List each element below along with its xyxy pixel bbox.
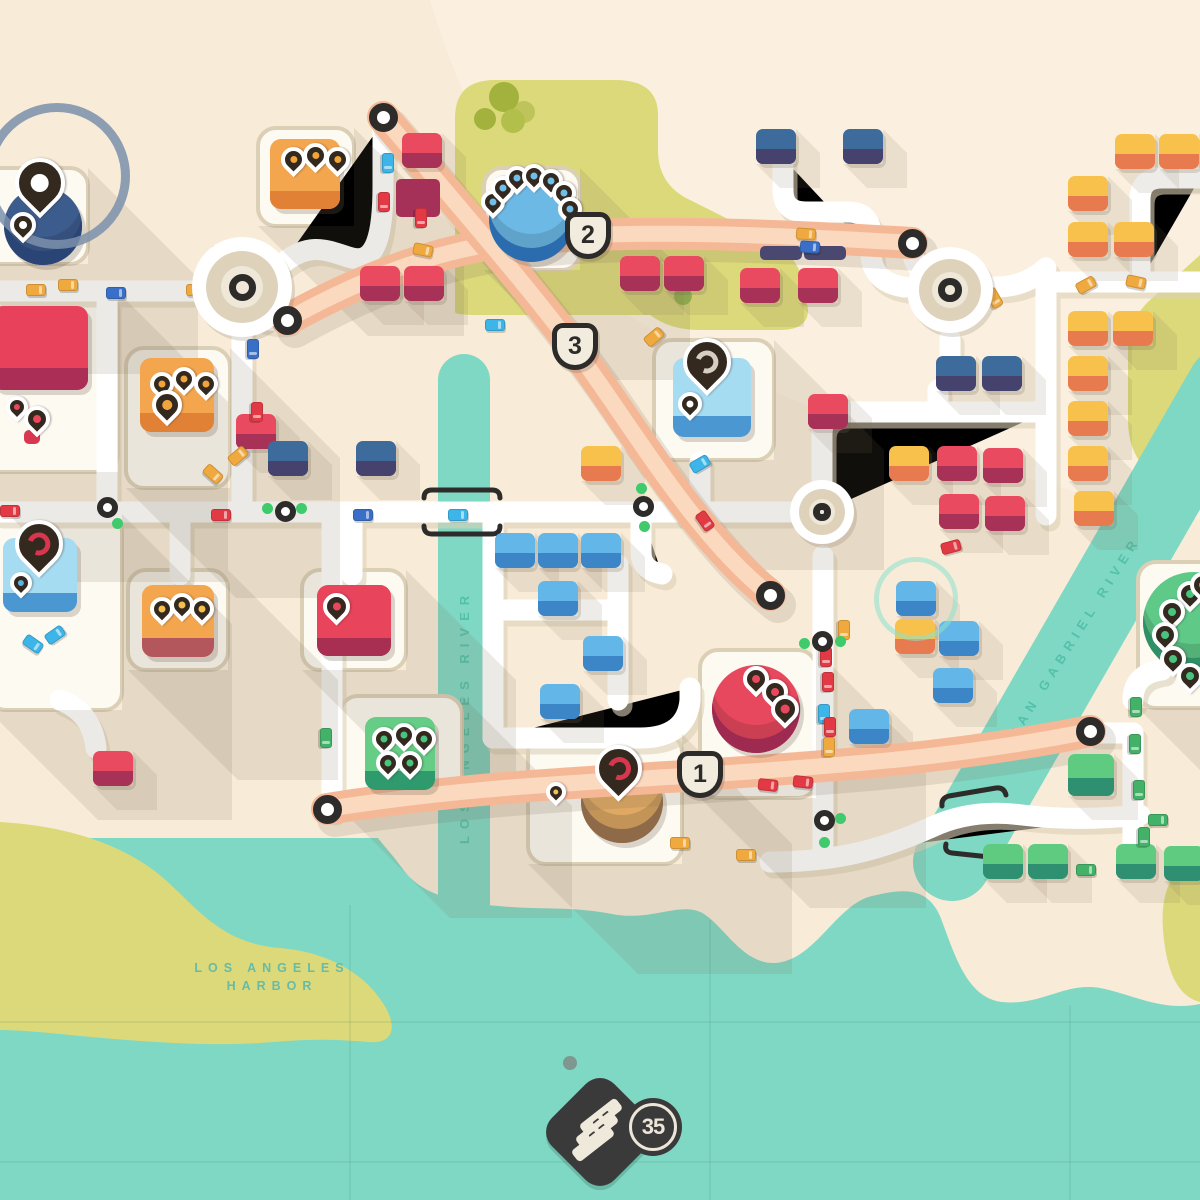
- building-blue-round-hub: [489, 177, 574, 262]
- house-blue: [933, 668, 973, 703]
- car-windshield: [212, 473, 220, 481]
- car-red: [757, 778, 778, 792]
- car-windshield: [221, 251, 227, 260]
- car-windshield: [380, 205, 388, 209]
- house-base: [983, 864, 1023, 879]
- destination-pin-icon: [317, 587, 355, 625]
- long-shadow: [0, 514, 232, 820]
- car-cyan: [688, 454, 711, 474]
- house-darkblue: [356, 441, 396, 476]
- house-orange: [1068, 356, 1108, 391]
- long-shadow: [0, 168, 198, 374]
- house-base: [756, 149, 796, 164]
- destination-pin-icon: [371, 746, 405, 780]
- house-base: [664, 276, 704, 291]
- long-shadow: [93, 751, 157, 810]
- destination-pin-icon: [673, 328, 741, 396]
- pin-dot: [31, 413, 42, 424]
- house-base: [1116, 864, 1156, 879]
- car-blue: [800, 240, 821, 253]
- car-windshield: [224, 511, 228, 519]
- building-base: [270, 191, 340, 209]
- destination-pin-icon: [185, 592, 219, 626]
- car-cyan: [43, 624, 66, 645]
- house-base: [985, 516, 1025, 531]
- destination-pin-icon: [5, 567, 36, 598]
- destination-pin-icon: [1, 391, 32, 422]
- traffic-green-dot: [639, 521, 650, 532]
- traffic-light-icon: [814, 810, 835, 831]
- house-red: [808, 394, 848, 429]
- pin-dot: [1184, 670, 1195, 681]
- destination-pin-icon: [189, 367, 223, 401]
- highway-2: [287, 234, 912, 320]
- house-base: [1068, 421, 1108, 436]
- highway-entrance-icon: [273, 306, 302, 335]
- car-windshield: [13, 507, 17, 515]
- pin-dot: [331, 601, 343, 613]
- car-windshield: [119, 289, 123, 297]
- house-base: [843, 149, 883, 164]
- car-windshield: [1140, 840, 1148, 844]
- destination-pin-icon: [765, 689, 805, 729]
- shadow-house: [24, 430, 40, 444]
- plot-orange-store-south: [128, 570, 228, 670]
- car-windshield: [1138, 279, 1143, 288]
- car-windshield: [249, 352, 257, 356]
- plot-red-block-west: [0, 292, 118, 472]
- car-windshield: [1086, 279, 1093, 288]
- shadow-house: [396, 179, 440, 217]
- house-base: [495, 553, 535, 568]
- highway-entrance-icon: [1076, 717, 1105, 746]
- car-blue: [106, 287, 126, 299]
- house-base: [889, 466, 929, 481]
- house-red: [939, 494, 979, 529]
- roundabout-island: [206, 251, 278, 323]
- long-shadow: [538, 533, 602, 592]
- destination-pin-icon: [167, 362, 201, 396]
- car-yellow: [412, 242, 434, 258]
- car-windshield: [1131, 747, 1139, 751]
- car-cyan: [236, 287, 256, 299]
- building-base: [317, 638, 391, 656]
- house-orange: [1115, 134, 1155, 169]
- house-green: [1028, 844, 1068, 879]
- traffic-green-dot: [835, 813, 846, 824]
- car-windshield: [71, 281, 75, 289]
- car-yellow: [984, 286, 1004, 309]
- car-cyan: [21, 633, 44, 654]
- traffic-light-icon: [97, 497, 118, 518]
- house-base: [849, 729, 889, 744]
- house-blue: [538, 581, 578, 616]
- long-shadow: [1138, 562, 1200, 818]
- highway-3: [383, 117, 770, 595]
- highway-badge-1: 1: [677, 751, 723, 798]
- car-windshield: [232, 306, 239, 315]
- car-yellow: [823, 737, 835, 757]
- highway-badge-2: 2: [565, 212, 611, 259]
- building-base: [673, 416, 751, 437]
- car-windshield: [952, 542, 957, 551]
- traffic-green-dot: [636, 483, 647, 494]
- house-base: [583, 656, 623, 671]
- car-red: [694, 509, 715, 532]
- destination-pin-icon: [534, 164, 568, 198]
- car-windshield: [1135, 793, 1143, 797]
- destination-pin-icon: [486, 171, 520, 205]
- building-base: [3, 593, 77, 612]
- pin-ring-dot: [24, 529, 55, 560]
- destination-pin-icon: [1172, 658, 1200, 695]
- long-shadow: [1114, 222, 1178, 281]
- car-red: [0, 505, 20, 517]
- house-orange: [581, 446, 621, 481]
- plot-red-store-mid: [302, 570, 406, 670]
- long-shadow: [540, 684, 604, 743]
- house-base: [538, 601, 578, 616]
- house-green: [1068, 754, 1114, 796]
- harbor-label-line2: HARBOR: [227, 979, 318, 993]
- car-red: [822, 672, 834, 692]
- plot-orange-store-north: [258, 128, 354, 226]
- traffic-green-dot: [296, 503, 307, 514]
- house-base: [404, 286, 444, 301]
- destination-pin-icon: [1172, 576, 1200, 613]
- house-darkblue: [982, 356, 1022, 391]
- house-blue: [896, 581, 936, 616]
- pin-dot: [498, 183, 508, 193]
- destination-pin-icon: [407, 722, 441, 756]
- roundabout-center: [932, 272, 968, 308]
- building-plots: [0, 128, 1200, 864]
- house-base: [1028, 864, 1068, 879]
- traffic-green-dot: [819, 837, 830, 848]
- long-shadow: [236, 414, 300, 473]
- house-orange: [1074, 491, 1114, 526]
- pin-dot: [288, 154, 299, 165]
- long-shadow: [1068, 754, 1138, 820]
- pin-dot: [552, 788, 559, 795]
- house-red: [236, 414, 276, 449]
- long-shadow: [268, 441, 332, 500]
- house-orange: [1068, 222, 1108, 257]
- car-windshield: [249, 289, 253, 297]
- pin-dot: [160, 398, 174, 412]
- traffic-green-dot: [799, 638, 810, 649]
- building-orange-store-south: [142, 585, 214, 657]
- park-southwest: [0, 822, 392, 1044]
- destination-pin-icon: [517, 159, 551, 193]
- car-windshield: [826, 730, 834, 734]
- house-base: [1068, 242, 1108, 257]
- destination-pin-icon: [387, 718, 421, 752]
- house-base: [1068, 331, 1108, 346]
- game-map[interactable]: LOS ANGELES RIVER SAN GABRIEL RIVER LOS …: [0, 0, 1200, 1200]
- long-shadow: [528, 734, 792, 974]
- pin-dot: [383, 758, 393, 768]
- destination-pin-icon: [5, 510, 73, 578]
- car-green: [1076, 864, 1096, 876]
- house-orange: [1068, 311, 1108, 346]
- road-network: [0, 122, 1200, 862]
- house-base: [356, 461, 396, 476]
- car-windshield: [33, 642, 40, 651]
- car-green: [1133, 780, 1145, 800]
- land-light-overlay: [430, 0, 1200, 520]
- roundabout: [790, 480, 854, 544]
- pin-dot: [546, 176, 556, 186]
- house-red: [740, 268, 780, 303]
- house-blue: [849, 709, 889, 744]
- highway-badge-3: 3: [552, 323, 598, 370]
- long-shadow: [0, 292, 228, 582]
- destination-pin-icon: [738, 661, 775, 698]
- car-yellow: [219, 302, 242, 321]
- house-base: [1074, 511, 1114, 526]
- house-base: [895, 639, 935, 654]
- traffic-green-dot: [262, 503, 273, 514]
- house-base: [236, 434, 276, 449]
- car-windshield: [992, 298, 1001, 305]
- house-blue: [495, 533, 535, 568]
- house-orange: [1068, 446, 1108, 481]
- building-amber-round-depot: [581, 761, 663, 843]
- pin-dot: [157, 379, 167, 389]
- destination-pin-icon: [276, 142, 311, 177]
- destination-pin-icon: [393, 746, 427, 780]
- destination-pin-icon: [165, 588, 199, 622]
- long-shadow: [849, 709, 913, 768]
- long-shadow: [983, 844, 1047, 903]
- house-red: [983, 448, 1023, 483]
- roundabout-ring-icon: [813, 503, 830, 520]
- car-windshield: [808, 230, 812, 238]
- highway-entrance-icon: [369, 103, 398, 132]
- car-windshield: [812, 243, 816, 251]
- house-base: [1115, 154, 1155, 169]
- house-base: [1068, 196, 1108, 211]
- score-value: 35: [624, 1098, 682, 1156]
- long-shadow: [933, 668, 997, 727]
- house-base: [740, 288, 780, 303]
- house-base: [1068, 466, 1108, 481]
- tree-icon: [474, 108, 496, 130]
- roundabout-center: [809, 499, 836, 526]
- long-shadow: [936, 356, 1000, 415]
- shadow-house: [804, 246, 846, 260]
- tree-shadow: [513, 101, 535, 123]
- car-yellow: [1074, 275, 1097, 295]
- roundabout-island: [919, 259, 981, 321]
- car-green: [1130, 697, 1142, 717]
- house-orange: [1159, 134, 1199, 169]
- house-base: [896, 601, 936, 616]
- long-shadow: [402, 133, 466, 192]
- destination-pin-icon: [757, 674, 794, 711]
- destination-pin-icon: [542, 778, 570, 806]
- plot-blue-pin-depot-west: [0, 514, 122, 710]
- building-landmark-pin-monument: [4, 187, 82, 265]
- car-windshield: [55, 628, 62, 637]
- car-cyan: [448, 509, 468, 521]
- car-cyan: [818, 704, 830, 724]
- plot-red-round-plant: [700, 650, 816, 798]
- pin-dot: [512, 173, 522, 183]
- long-shadow: [258, 128, 464, 336]
- destination-pin-icon: [146, 384, 188, 426]
- long-shadow: [1116, 844, 1180, 903]
- shadow-layer: [0, 0, 1200, 1200]
- car-windshield: [683, 839, 687, 847]
- car-red: [209, 245, 232, 263]
- car-cyan: [485, 319, 505, 331]
- san-gabriel-river: [952, 386, 1200, 862]
- pin-dot: [750, 673, 761, 684]
- house-red: [404, 266, 444, 301]
- destination-pin-icon: [673, 387, 707, 421]
- destination-pin-icon: [5, 148, 76, 219]
- long-shadow: [985, 496, 1049, 555]
- car-windshield: [253, 415, 261, 419]
- pin-dot: [559, 188, 569, 198]
- building-base: [140, 413, 214, 432]
- tree-icon: [489, 82, 519, 112]
- pin-dot: [685, 399, 695, 409]
- car-windshield: [384, 166, 392, 170]
- spawn-ring-icon: [874, 557, 958, 641]
- pin-dot: [1159, 629, 1170, 640]
- pin-ring-dot: [603, 753, 633, 783]
- pin-dot: [1167, 653, 1178, 664]
- traffic-green-dot: [112, 518, 123, 529]
- car-windshield: [322, 741, 330, 745]
- car-red: [378, 192, 390, 212]
- house-base: [1164, 866, 1200, 881]
- highway-entrance-icon: [898, 229, 927, 258]
- highway-entrance-icon: [756, 581, 785, 610]
- long-shadow: [1164, 846, 1200, 905]
- long-shadow: [1115, 134, 1179, 193]
- pin-dot: [1166, 606, 1177, 617]
- house-base: [581, 466, 621, 481]
- pin-dot: [1184, 588, 1195, 599]
- long-shadow: [808, 394, 872, 453]
- pin-dot: [17, 579, 26, 588]
- roundabout-ring-icon: [229, 274, 256, 301]
- house-blue: [939, 621, 979, 656]
- roundabout-island: [799, 489, 845, 535]
- bridge-marks: [424, 490, 1009, 858]
- car-yellow: [1125, 274, 1147, 290]
- house-base: [581, 553, 621, 568]
- land-base: [0, 0, 1200, 1200]
- pin-dot: [405, 758, 415, 768]
- car-windshield: [461, 511, 465, 519]
- car-windshield: [770, 781, 774, 789]
- house-base: [93, 771, 133, 786]
- long-shadow: [982, 356, 1046, 415]
- destination-pin-icon: [5, 207, 42, 244]
- house-base: [933, 688, 973, 703]
- pin-dot: [197, 604, 207, 614]
- plot-green-store-south: [340, 696, 462, 808]
- pin-dot: [310, 150, 321, 161]
- pin-dot: [17, 219, 28, 230]
- car-windshield: [840, 633, 848, 637]
- destination-pin-icon: [553, 192, 587, 226]
- car-blue: [927, 251, 950, 273]
- pin-dot: [769, 686, 780, 697]
- plot-amber-round-depot: [528, 734, 682, 864]
- roundabout: [192, 237, 292, 337]
- house-darkblue: [268, 441, 308, 476]
- car-windshield: [749, 851, 753, 859]
- pin-dot: [779, 703, 791, 715]
- pin-dot: [565, 204, 575, 214]
- destination-pin-icon: [145, 592, 179, 626]
- traffic-light-icon: [633, 496, 654, 517]
- long-shadow: [495, 533, 559, 592]
- destination-pin-icon: [1185, 567, 1200, 604]
- car-green: [1148, 814, 1168, 826]
- house-orange: [1068, 401, 1108, 436]
- destination-pin-icon: [320, 142, 355, 177]
- long-shadow: [1068, 176, 1132, 235]
- plot-blue-pin-depot-center: [654, 340, 774, 460]
- house-orange: [1113, 311, 1153, 346]
- roundabout-center: [221, 266, 263, 308]
- traffic-green-dot: [835, 636, 846, 647]
- house-orange: [1114, 222, 1154, 257]
- highway-1: [327, 731, 1090, 809]
- house-base: [982, 376, 1022, 391]
- long-shadow: [700, 650, 926, 908]
- building-orange-store-west: [140, 358, 214, 432]
- long-shadow: [1068, 446, 1132, 505]
- house-orange: [889, 446, 929, 481]
- car-yellow: [226, 445, 249, 467]
- park-southeast-strip: [1163, 858, 1200, 1002]
- house-blue: [581, 533, 621, 568]
- park-north: [455, 80, 808, 330]
- long-shadow: [756, 129, 820, 188]
- destination-pin-icon: [1147, 617, 1184, 654]
- car-red: [824, 717, 836, 737]
- car-windshield: [1161, 816, 1165, 824]
- building-red-block-west: [0, 306, 88, 390]
- destination-pin-icon: [500, 161, 534, 195]
- house-green: [983, 844, 1023, 879]
- long-shadow: [1068, 401, 1132, 460]
- house-base: [983, 468, 1023, 483]
- car-windshield: [417, 221, 425, 225]
- long-shadow: [360, 266, 424, 325]
- long-shadow: [1074, 491, 1138, 550]
- pin-dot: [379, 734, 389, 744]
- car-yellow: [736, 849, 756, 861]
- long-shadow: [843, 129, 907, 188]
- car-windshield: [498, 321, 502, 329]
- score-badge: 35: [624, 1098, 682, 1156]
- car-yellow: [838, 620, 850, 640]
- car-red: [792, 775, 813, 789]
- house-red: [937, 446, 977, 481]
- car-cyan: [382, 153, 394, 173]
- tree-icon: [501, 109, 525, 133]
- house-red: [664, 256, 704, 291]
